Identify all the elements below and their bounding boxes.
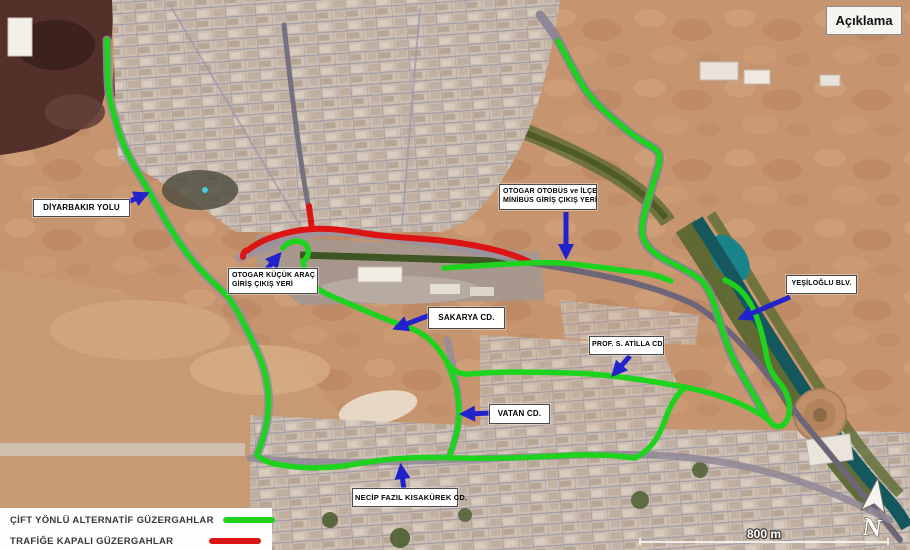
label-yesiloglu: YEŞİLOĞLU BLV. <box>786 275 857 294</box>
legend-item-alternative: ÇİFT YÖNLÜ ALTERNATİF GÜZERGAHLAR <box>10 513 262 527</box>
label-diyarbakir-yolu: DİYARBAKIR YOLU <box>33 199 130 217</box>
green-line-swatch-icon <box>222 516 276 524</box>
label-otogar-otobus: OTOGAR OTOBÜS ve İLÇE MİNİBÜS GİRİŞ ÇIKI… <box>499 184 597 210</box>
map-imagery-white-patch <box>8 18 32 56</box>
label-necip-fazil: NECİP FAZIL KISAKÜREK CD. <box>352 488 458 507</box>
satellite-map[interactable]: 800 m N <box>0 0 910 550</box>
traffic-route-map-page: 800 m N DİYARBAKIR YOLU OTOGAR KÜÇÜK ARA… <box>0 0 910 550</box>
legend-item-closed: TRAFİĞE KAPALI GÜZERGAHLAR <box>10 534 262 548</box>
label-otogar-kucuk-arac: OTOGAR KÜÇÜK ARAÇ GİRİŞ ÇIKIŞ YERİ <box>228 268 318 294</box>
red-line-swatch-icon <box>208 537 262 545</box>
scale-label: 800 m <box>747 527 781 541</box>
label-prof-s-atilla: PROF. S. ATİLLA CD. <box>589 336 664 355</box>
label-sakarya: SAKARYA CD. <box>428 307 505 329</box>
arrow-necip-fazil <box>401 467 404 490</box>
legend: ÇİFT YÖNLÜ ALTERNATİF GÜZERGAHLAR TRAFİĞ… <box>0 508 272 550</box>
legend-title: Açıklama <box>826 6 902 35</box>
label-vatan: VATAN CD. <box>489 404 550 424</box>
